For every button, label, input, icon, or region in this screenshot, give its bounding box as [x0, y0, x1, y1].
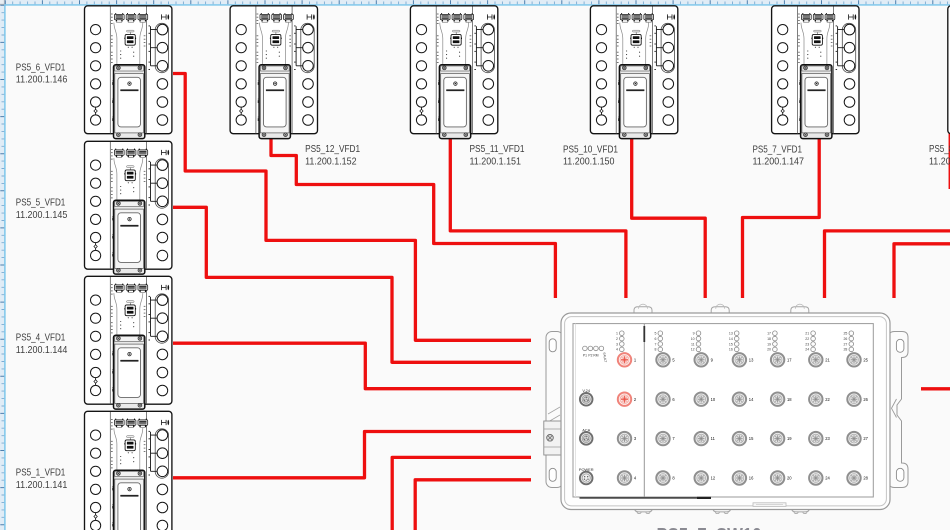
svg-text:25: 25 — [863, 357, 868, 362]
svg-text:13: 13 — [749, 357, 754, 362]
svg-text:28: 28 — [843, 348, 847, 352]
svg-text:18: 18 — [767, 337, 771, 341]
svg-text:11.200.1.150: 11.200.1.150 — [563, 157, 615, 168]
svg-text:24: 24 — [805, 348, 809, 352]
svg-text:PS5_8_VFD1: PS5_8_VFD1 — [929, 144, 950, 155]
svg-text:11: 11 — [711, 436, 716, 441]
svg-text:11.200.1.148: 11.200.1.148 — [929, 156, 950, 167]
svg-text:4: 4 — [616, 348, 618, 352]
svg-text:23: 23 — [825, 436, 830, 441]
svg-text:PS5_7_SW10: PS5_7_SW10 — [657, 525, 762, 530]
svg-text:13: 13 — [729, 332, 733, 336]
svg-text:10: 10 — [691, 337, 695, 341]
svg-text:28: 28 — [863, 476, 868, 481]
svg-text:2: 2 — [616, 337, 618, 341]
svg-text:17: 17 — [787, 357, 792, 362]
svg-text:PS5_4_VFD1: PS5_4_VFD1 — [16, 333, 66, 344]
svg-text:27: 27 — [863, 436, 868, 441]
svg-text:17: 17 — [767, 332, 771, 336]
svg-text:18: 18 — [787, 397, 792, 402]
svg-text:11.200.1.151: 11.200.1.151 — [470, 156, 522, 167]
svg-text:12: 12 — [711, 476, 716, 481]
svg-text:11: 11 — [691, 342, 695, 346]
svg-text:14: 14 — [749, 397, 754, 402]
svg-text:PS5_5_VFD1: PS5_5_VFD1 — [16, 198, 66, 209]
svg-text:11.200.1.144: 11.200.1.144 — [16, 345, 68, 356]
svg-text:21: 21 — [805, 332, 809, 336]
svg-text:11.200.1.146: 11.200.1.146 — [16, 74, 68, 85]
svg-text:10: 10 — [711, 397, 716, 402]
svg-text:PS5_12_VFD1: PS5_12_VFD1 — [305, 144, 360, 155]
svg-text:11.200.1.145: 11.200.1.145 — [16, 210, 68, 221]
svg-text:1: 1 — [616, 332, 618, 336]
svg-text:11.200.1.152: 11.200.1.152 — [305, 156, 357, 167]
svg-text:26: 26 — [843, 337, 847, 341]
svg-text:15: 15 — [749, 436, 754, 441]
svg-text:14: 14 — [729, 337, 733, 341]
svg-text:P2: P2 — [588, 354, 592, 358]
svg-text:20: 20 — [767, 348, 771, 352]
svg-text:11.200.1.147: 11.200.1.147 — [753, 157, 805, 168]
svg-text:6: 6 — [654, 337, 656, 341]
svg-text:PS5_1_VFD1: PS5_1_VFD1 — [16, 468, 66, 479]
svg-text:PS5_7_VFD1: PS5_7_VFD1 — [753, 144, 803, 155]
svg-text:19: 19 — [767, 342, 771, 346]
svg-text:26: 26 — [863, 397, 868, 402]
svg-text:P1: P1 — [583, 354, 587, 358]
svg-text:5: 5 — [654, 332, 656, 336]
svg-text:PS5_11_VFD1: PS5_11_VFD1 — [470, 144, 525, 155]
svg-text:8: 8 — [654, 348, 656, 352]
svg-text:19: 19 — [787, 436, 792, 441]
svg-text:21: 21 — [825, 357, 830, 362]
svg-text:22: 22 — [825, 397, 830, 402]
svg-text:27: 27 — [843, 342, 847, 346]
svg-text:PS5_6_VFD1: PS5_6_VFD1 — [16, 62, 66, 73]
svg-text:16: 16 — [729, 348, 733, 352]
svg-text:PS5_10_VFD1: PS5_10_VFD1 — [563, 144, 618, 155]
svg-text:23: 23 — [805, 342, 809, 346]
svg-text:RM: RM — [593, 354, 598, 358]
svg-text:20: 20 — [787, 476, 792, 481]
svg-text:24: 24 — [825, 476, 830, 481]
svg-text:7: 7 — [654, 342, 656, 346]
svg-text:3: 3 — [616, 342, 618, 346]
svg-text:22: 22 — [805, 337, 809, 341]
svg-text:9: 9 — [693, 332, 695, 336]
svg-text:25: 25 — [843, 332, 847, 336]
svg-text:11.200.1.141: 11.200.1.141 — [16, 480, 68, 491]
svg-text:12: 12 — [691, 348, 695, 352]
svg-text:15: 15 — [729, 342, 733, 346]
svg-text:16: 16 — [749, 476, 754, 481]
